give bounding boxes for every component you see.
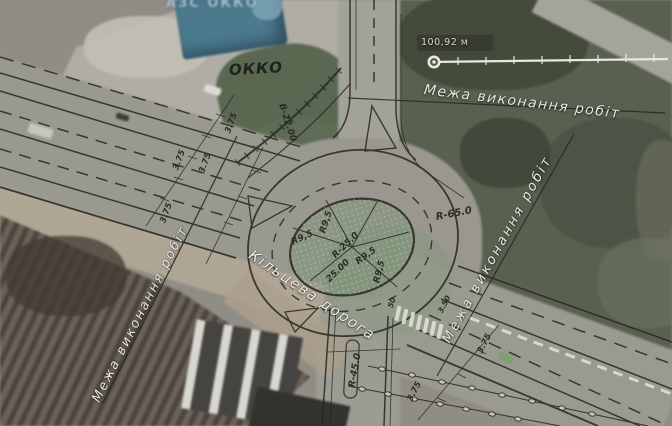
- cad-overlay-svg: [0, 0, 672, 426]
- scalebar-length-label: 100,92 м: [421, 37, 468, 48]
- station-map-label: ОККО: [229, 58, 284, 79]
- plan-screenshot: АЗС ОККО: [0, 0, 672, 426]
- scalebar: [429, 54, 668, 67]
